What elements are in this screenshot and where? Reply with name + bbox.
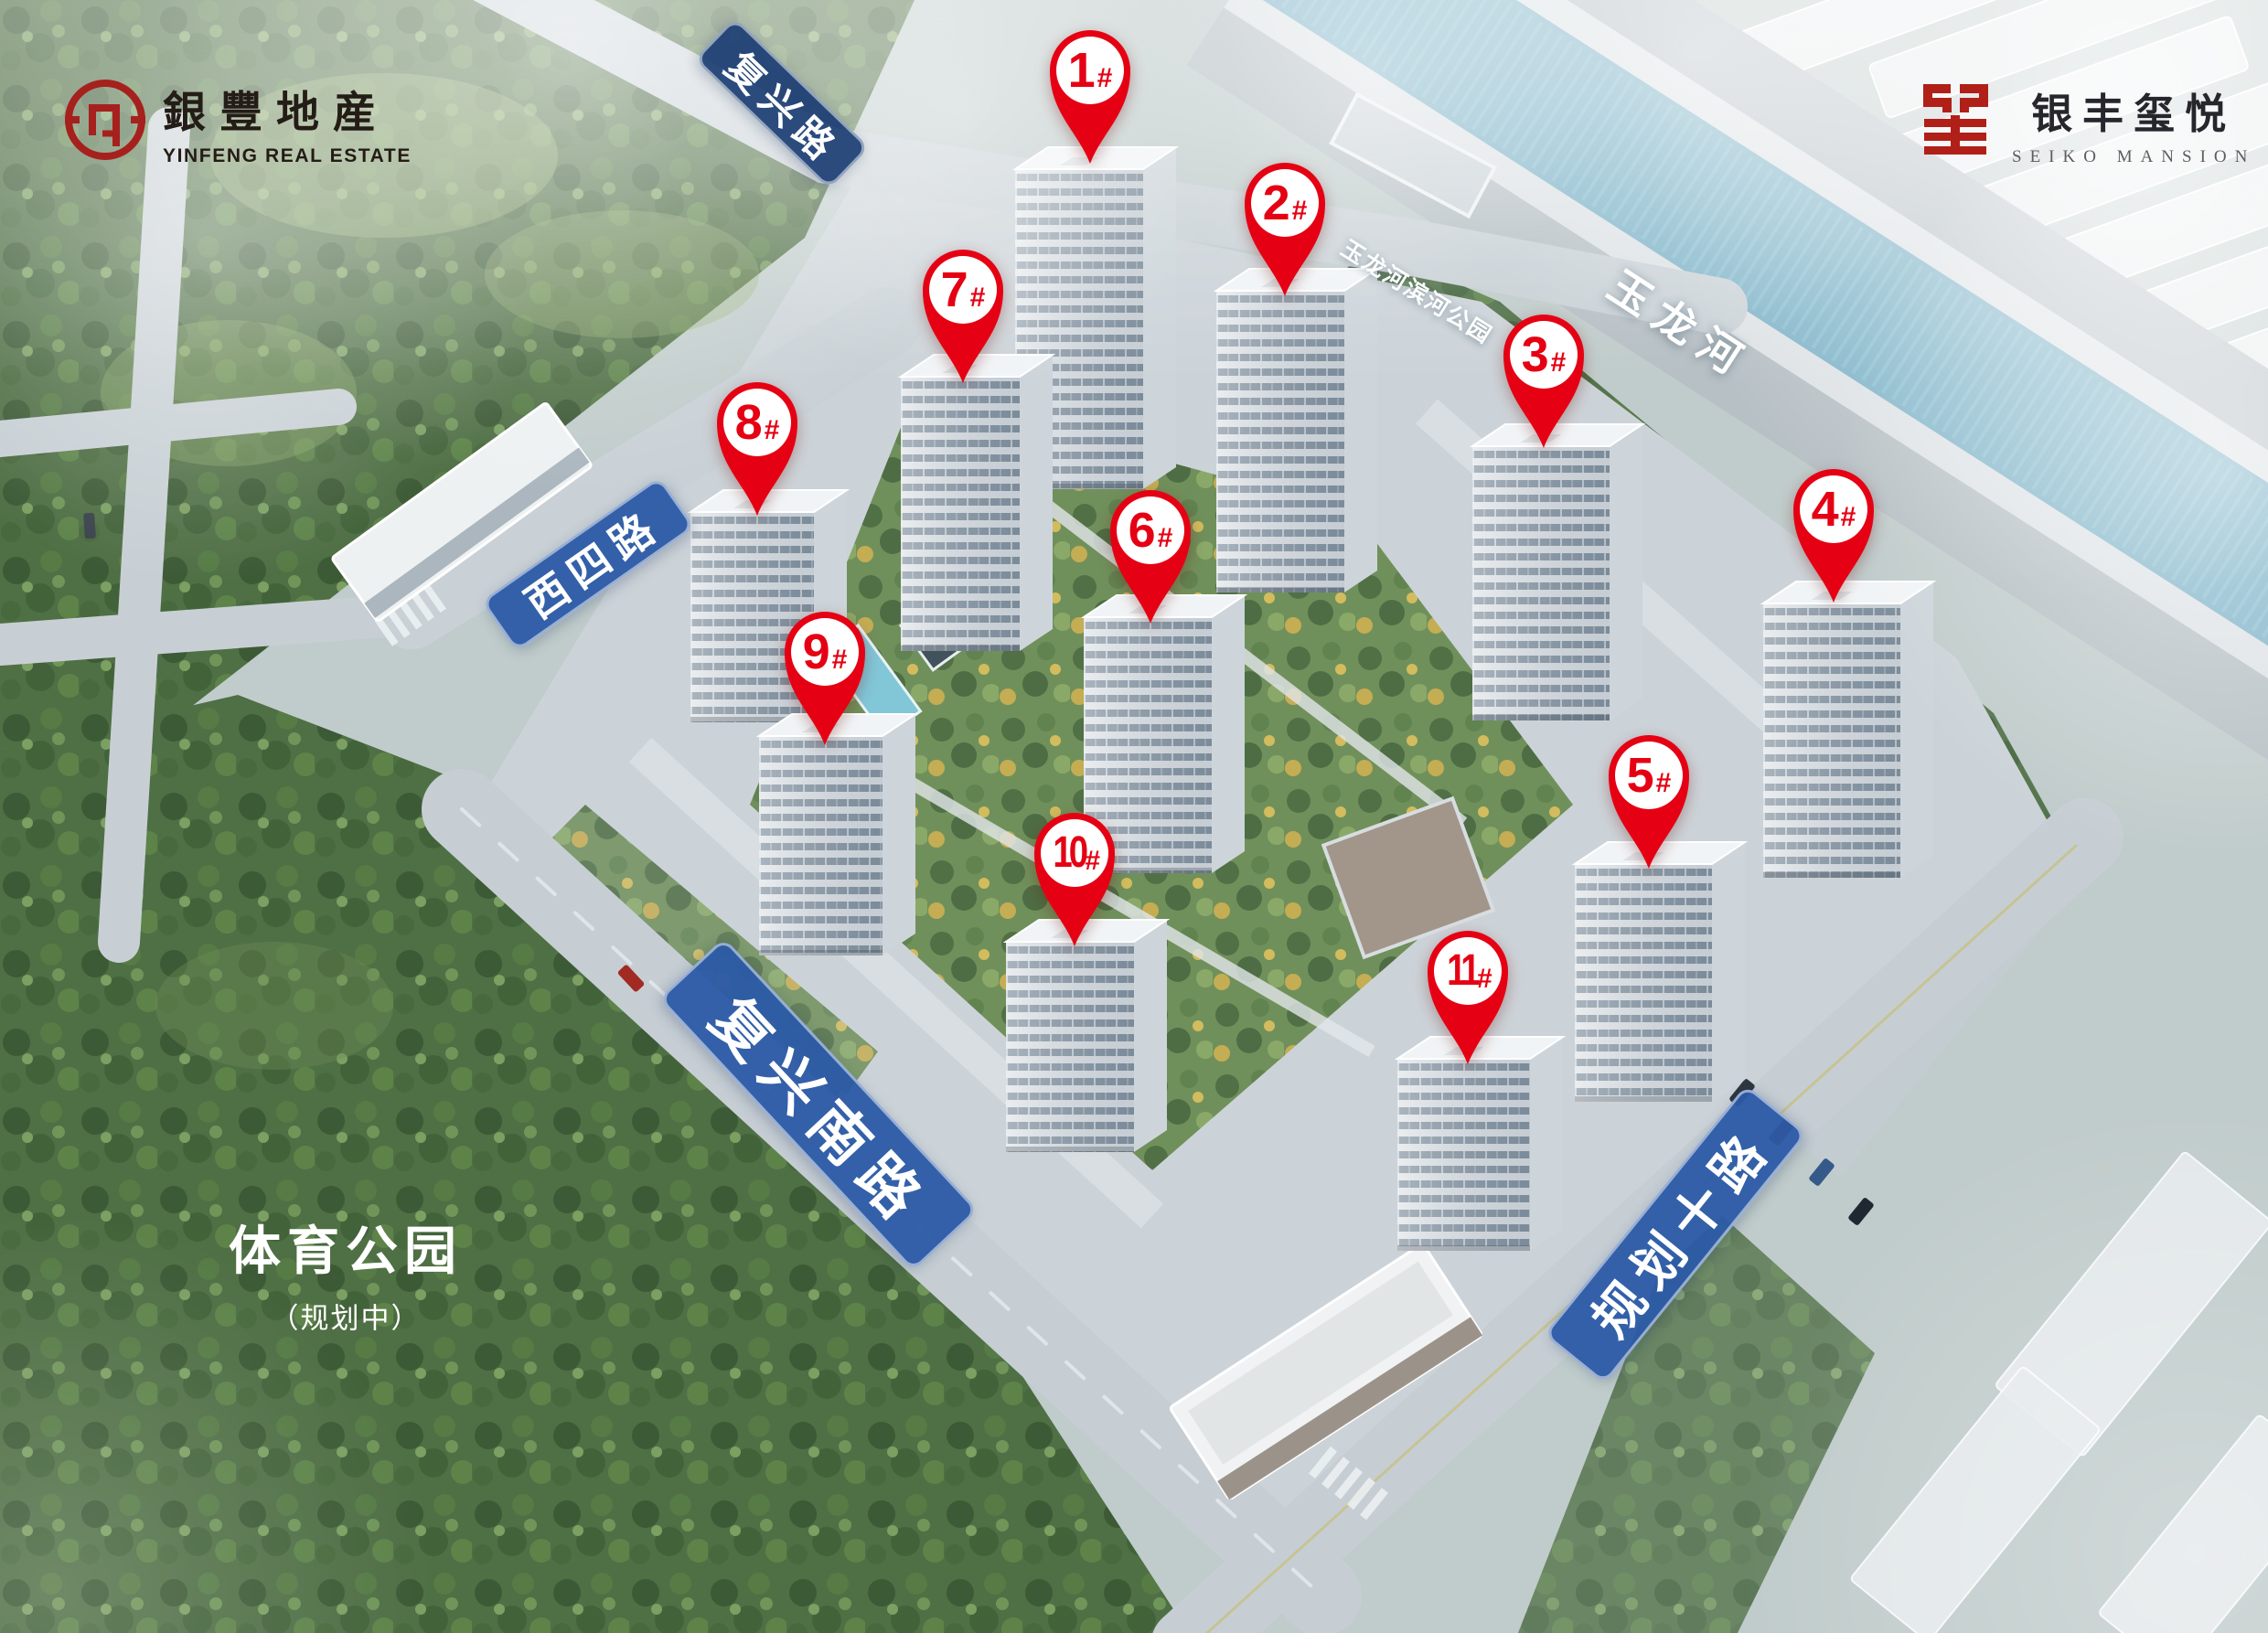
building-marker-10#[interactable]: 10# bbox=[1031, 809, 1118, 948]
building-marker-7#[interactable]: 7# bbox=[919, 246, 1007, 385]
project-name-cn: 银丰玺悦 bbox=[2031, 80, 2236, 140]
developer-name-en: YINFENG REAL ESTATE bbox=[163, 145, 412, 167]
building-marker-6#[interactable]: 6# bbox=[1107, 486, 1194, 625]
developer-name-cn: 銀豐地産 bbox=[163, 77, 412, 140]
developer-seal-icon bbox=[62, 77, 148, 163]
building-marker-3#[interactable]: 3# bbox=[1500, 311, 1588, 450]
building-marker-8#[interactable]: 8# bbox=[713, 379, 801, 518]
building-marker-4#[interactable]: 4# bbox=[1790, 465, 1878, 604]
project-seal-icon bbox=[1917, 80, 1994, 157]
site-plan-rendering: 复兴路西四路复兴南路规划十路 玉龙河 玉龙河滨河公园 体育公园 （规划中） 1#… bbox=[0, 0, 2268, 1633]
developer-logo: 銀豐地産 YINFENG REAL ESTATE bbox=[62, 77, 412, 167]
building-marker-9#[interactable]: 9# bbox=[781, 608, 869, 747]
building-marker-2#[interactable]: 2# bbox=[1241, 159, 1329, 298]
building-marker-5#[interactable]: 5# bbox=[1605, 731, 1693, 870]
project-logo: 银丰玺悦 SEIKO MANSION bbox=[1917, 80, 2255, 167]
building-marker-11#[interactable]: 11# bbox=[1424, 927, 1512, 1066]
project-name-en: SEIKO MANSION bbox=[2012, 147, 2255, 167]
building-marker-1#[interactable]: 1# bbox=[1046, 27, 1134, 165]
building-markers-layer: 1#2#3#4#5#6#7#8#9#10#11# bbox=[0, 0, 2268, 1633]
